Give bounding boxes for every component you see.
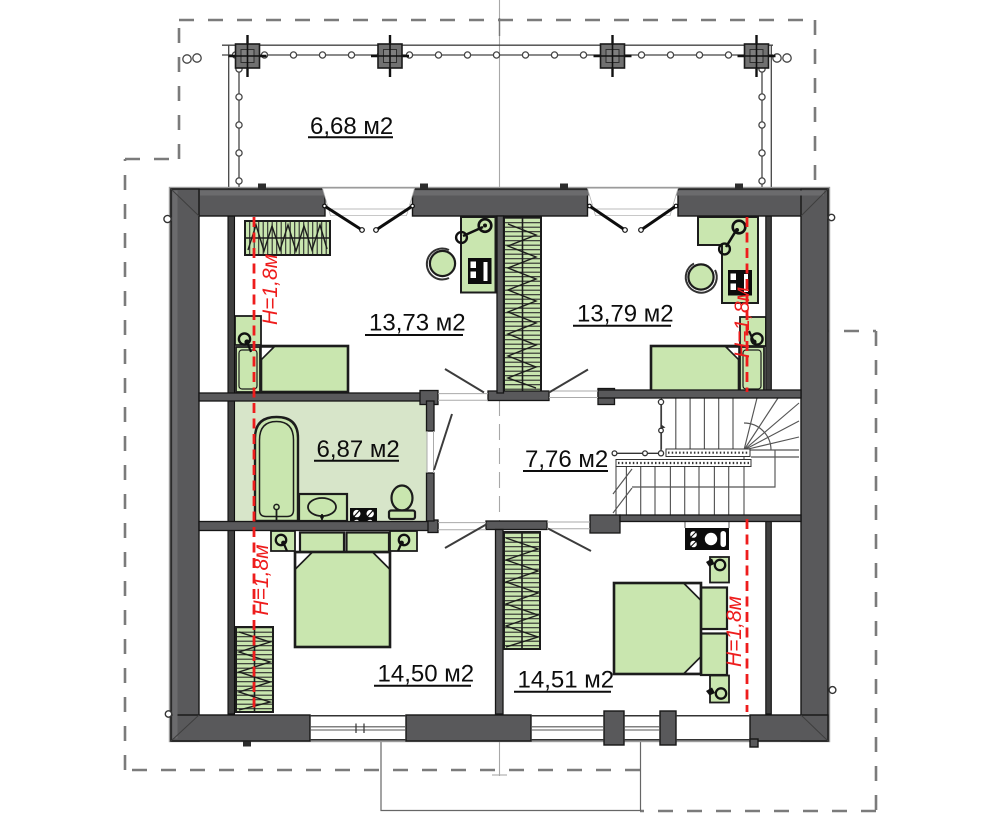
svg-text:Н=1,8м: Н=1,8м (250, 544, 273, 615)
svg-text:Н=1,8м: Н=1,8м (259, 254, 282, 325)
svg-text:13,73 м2: 13,73 м2 (369, 310, 466, 337)
svg-text:14,50 м2: 14,50 м2 (378, 661, 475, 688)
svg-text:6,87 м2: 6,87 м2 (317, 436, 400, 463)
svg-text:Н=1,8м: Н=1,8м (731, 287, 754, 358)
svg-text:Н=1,8м: Н=1,8м (723, 596, 746, 667)
svg-text:7,76 м2: 7,76 м2 (525, 446, 608, 473)
svg-text:13,79 м2: 13,79 м2 (577, 301, 674, 328)
svg-text:6,68 м2: 6,68 м2 (310, 113, 393, 140)
svg-text:14,51 м2: 14,51 м2 (518, 667, 615, 694)
